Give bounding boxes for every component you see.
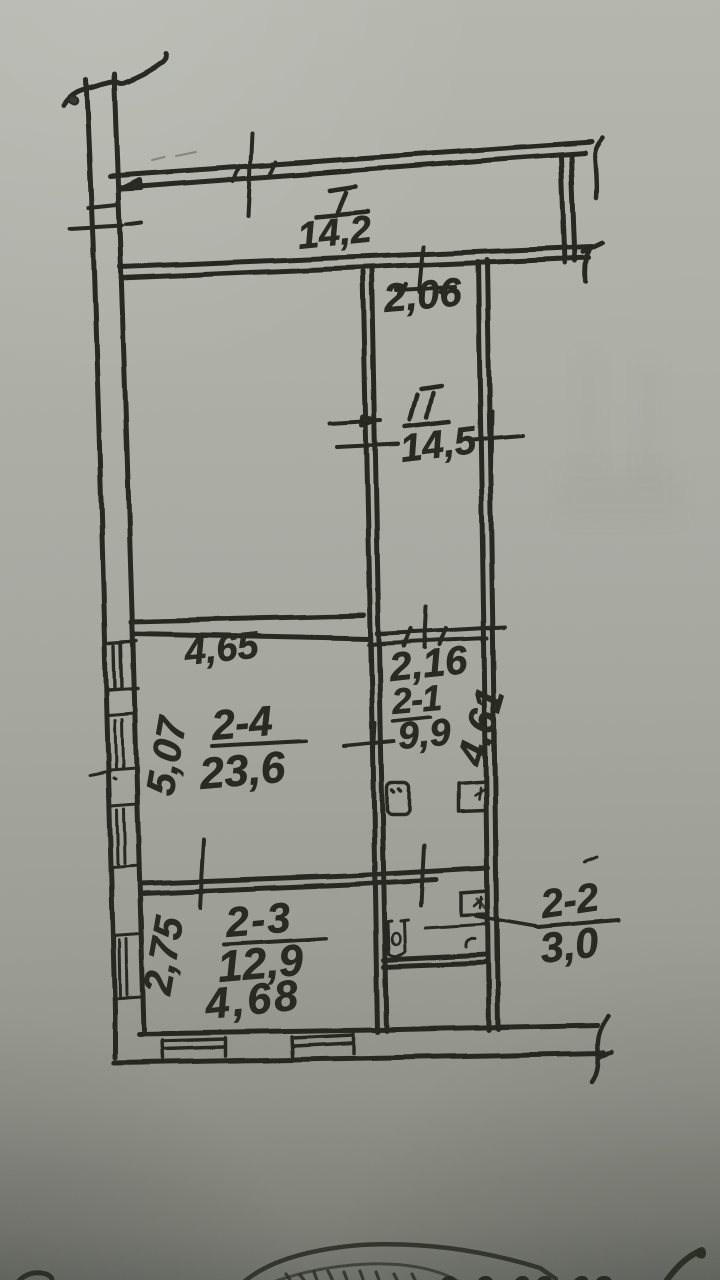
svg-text:4,65: 4,65	[182, 624, 262, 674]
svg-text:2,75: 2,75	[135, 913, 192, 999]
svg-text:14,5: 14,5	[398, 419, 480, 471]
svg-text:3,0: 3,0	[537, 918, 601, 972]
svg-text:23,6: 23,6	[197, 743, 288, 799]
svg-text:5,07: 5,07	[139, 713, 196, 799]
svg-text:9.9 09.03: 9.9 09.03	[438, 1270, 616, 1280]
svg-text:9,9: 9,9	[396, 712, 452, 758]
svg-text:2,06: 2,06	[381, 270, 464, 321]
svg-text:2-4: 2-4	[209, 697, 275, 749]
svg-text:4,61: 4,61	[449, 684, 513, 772]
svg-text:14,2: 14,2	[296, 208, 374, 258]
svg-text:4,68: 4,68	[202, 971, 303, 1029]
